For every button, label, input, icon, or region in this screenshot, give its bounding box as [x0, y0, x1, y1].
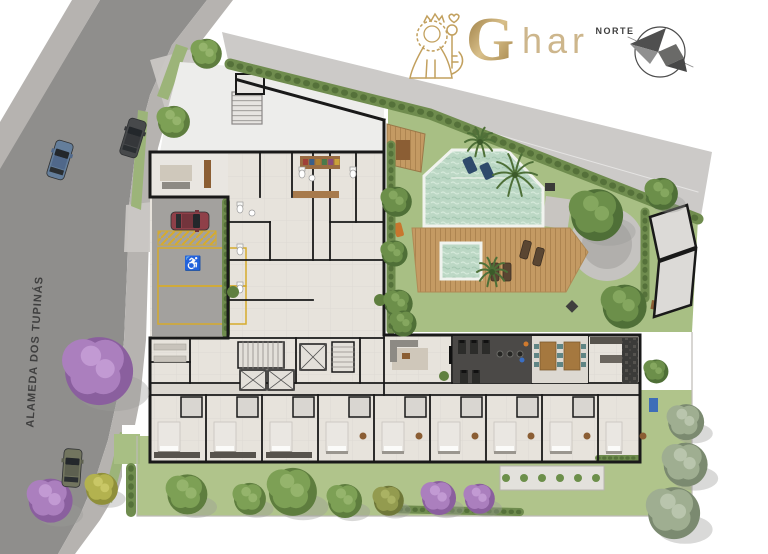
unit-bathroom — [405, 397, 426, 417]
bed-pillow — [384, 446, 402, 451]
rear-terrace — [500, 466, 604, 490]
bed-headboard — [550, 451, 572, 454]
key-bow — [447, 25, 457, 35]
palm-center — [477, 139, 483, 145]
unit-bathroom — [349, 397, 370, 417]
tree-highlight — [478, 494, 486, 502]
tree-highlight — [397, 299, 405, 307]
coworking-table — [540, 342, 556, 370]
bed-pillow — [328, 446, 346, 451]
kitchen-counter — [266, 452, 312, 458]
garden-path — [542, 196, 572, 229]
shrub — [502, 474, 510, 482]
coffee-table — [402, 353, 410, 359]
site-plan-drawing: ♿ ALAMEDA DOS TUPINÁS G har NORTE — [0, 0, 768, 554]
chair — [534, 362, 539, 367]
shrub — [592, 474, 600, 482]
locker-box — [303, 159, 308, 165]
brand-logo: G har — [410, 6, 589, 78]
tree-highlight — [387, 496, 395, 504]
bed-headboard — [382, 451, 404, 454]
bed-headboard — [326, 451, 348, 454]
toilet — [237, 205, 243, 213]
logo-initial: G — [466, 6, 514, 74]
unit-table — [416, 433, 423, 440]
north-compass: NORTE — [596, 26, 694, 77]
car-mirror — [81, 460, 84, 464]
storage-shelf — [154, 356, 186, 362]
reception-desk — [204, 160, 211, 188]
no-parking-hatch — [158, 231, 216, 245]
locker-box — [328, 159, 333, 165]
sink — [249, 210, 255, 216]
gym-accent — [520, 358, 525, 363]
car-windshield — [65, 458, 79, 466]
gym-machine-screen — [474, 370, 479, 373]
garage-ramp — [232, 92, 262, 124]
tree-highlight — [205, 49, 213, 57]
chair — [558, 353, 563, 358]
unit-bathroom — [573, 397, 594, 417]
unit-table — [584, 433, 591, 440]
gym-machine-screen — [462, 370, 467, 373]
shrub — [574, 474, 582, 482]
unit-table — [472, 433, 479, 440]
car-windshield — [193, 214, 200, 228]
floor — [150, 384, 640, 395]
tree-highlight — [683, 457, 695, 469]
bed-headboard — [606, 451, 622, 454]
locker-box — [309, 159, 314, 165]
chair — [558, 344, 563, 349]
lion-face — [424, 26, 440, 42]
toilet — [299, 170, 305, 178]
chair — [558, 362, 563, 367]
shrub — [538, 474, 546, 482]
chair — [581, 353, 586, 358]
tree-highlight — [393, 249, 400, 256]
gym-machine-screen — [484, 340, 489, 343]
car-roof — [64, 465, 79, 477]
car-mirror — [195, 230, 199, 233]
bed-headboard — [438, 451, 460, 454]
shrub — [556, 474, 564, 482]
chair — [534, 344, 539, 349]
bbq-grill — [545, 183, 555, 191]
north-label: NORTE — [596, 26, 635, 36]
tree-highlight — [437, 492, 447, 502]
locker-box — [316, 159, 321, 165]
unit-bathroom — [517, 397, 538, 417]
bed-pillow — [440, 446, 458, 451]
gym-bike — [507, 351, 513, 357]
bed-pillow — [272, 446, 290, 451]
chair — [581, 362, 586, 367]
tv-panel — [449, 346, 452, 364]
locker-box — [322, 159, 327, 165]
gym-bike — [517, 351, 523, 357]
tree-highlight — [402, 319, 409, 326]
driveway-crossing — [124, 202, 152, 252]
lion-stroke — [449, 14, 459, 22]
chair — [534, 353, 539, 358]
lion-stroke — [410, 46, 452, 78]
plant — [227, 286, 239, 298]
gym-bike — [497, 351, 503, 357]
tree-highlight — [622, 299, 634, 311]
bed-pillow — [160, 446, 178, 451]
bed-pillow — [608, 446, 620, 451]
tree-highlight — [595, 206, 610, 221]
gym-accent — [524, 342, 529, 347]
storage-shelf — [154, 344, 186, 350]
coworking-table — [564, 342, 580, 370]
unit-bathroom — [181, 397, 202, 417]
locker-shelf — [293, 191, 339, 198]
lobby-sofa — [162, 182, 190, 189]
shrub — [520, 474, 528, 482]
tree-highlight — [48, 493, 60, 505]
tree-highlight — [185, 487, 196, 498]
pergola-table — [396, 140, 410, 160]
car-red — [171, 210, 209, 232]
unit-table — [360, 433, 367, 440]
tree-highlight — [660, 188, 669, 197]
unit-bathroom — [237, 397, 258, 417]
plant — [439, 371, 449, 381]
bed-pillow — [552, 446, 570, 451]
tree-gg — [646, 487, 713, 544]
sink — [309, 175, 315, 181]
palm-center — [512, 172, 518, 178]
lion-key-logo-icon — [410, 14, 463, 78]
blue-planter — [649, 398, 658, 412]
lounge-sofa — [390, 340, 397, 362]
tree-highlight — [96, 359, 115, 378]
kitchen-counter — [210, 452, 256, 458]
car-rear-glass — [176, 214, 181, 228]
palm-center — [489, 269, 495, 275]
pool-deck — [412, 228, 588, 292]
tree-g2 — [643, 359, 668, 383]
unit-bathroom — [461, 397, 482, 417]
unit-table — [528, 433, 535, 440]
tree-highlight — [655, 367, 662, 374]
lion-stroke — [424, 14, 444, 22]
chair — [581, 344, 586, 349]
unit-table — [640, 433, 647, 440]
kitchen-counter — [154, 452, 200, 458]
logo-wordmark: har — [522, 20, 589, 61]
tree-highlight — [343, 495, 353, 505]
site-plan-page: ♿ ALAMEDA DOS TUPINÁS G har NORTE — [0, 0, 768, 554]
accessible-parking-icon: ♿ — [184, 255, 201, 272]
car-mirror — [195, 210, 199, 213]
bed-headboard — [494, 451, 516, 454]
tree-highlight — [395, 197, 403, 205]
tree-highlight — [172, 116, 181, 125]
tree-highlight — [100, 483, 109, 492]
tree-highlight — [248, 493, 257, 502]
tree-highlight — [684, 416, 694, 426]
lion-stroke — [426, 60, 427, 78]
kids-pool — [441, 243, 481, 279]
car-mirror — [61, 458, 64, 462]
tree-highlight — [672, 504, 687, 519]
lawn — [114, 434, 140, 464]
toilet — [237, 247, 243, 255]
bed-pillow — [216, 446, 234, 451]
unit-bathroom — [293, 397, 314, 417]
gym-machine-screen — [460, 340, 465, 343]
bed-pillow — [496, 446, 514, 451]
tree-highlight — [290, 483, 303, 496]
car-roof — [182, 214, 193, 228]
feature-tile-wall — [622, 338, 638, 384]
gym-machine-screen — [472, 340, 477, 343]
toilet — [350, 170, 356, 178]
stairs — [238, 342, 284, 368]
car-rear-glass — [64, 476, 78, 482]
locker-box — [335, 159, 340, 165]
lobby-rug — [160, 165, 192, 181]
